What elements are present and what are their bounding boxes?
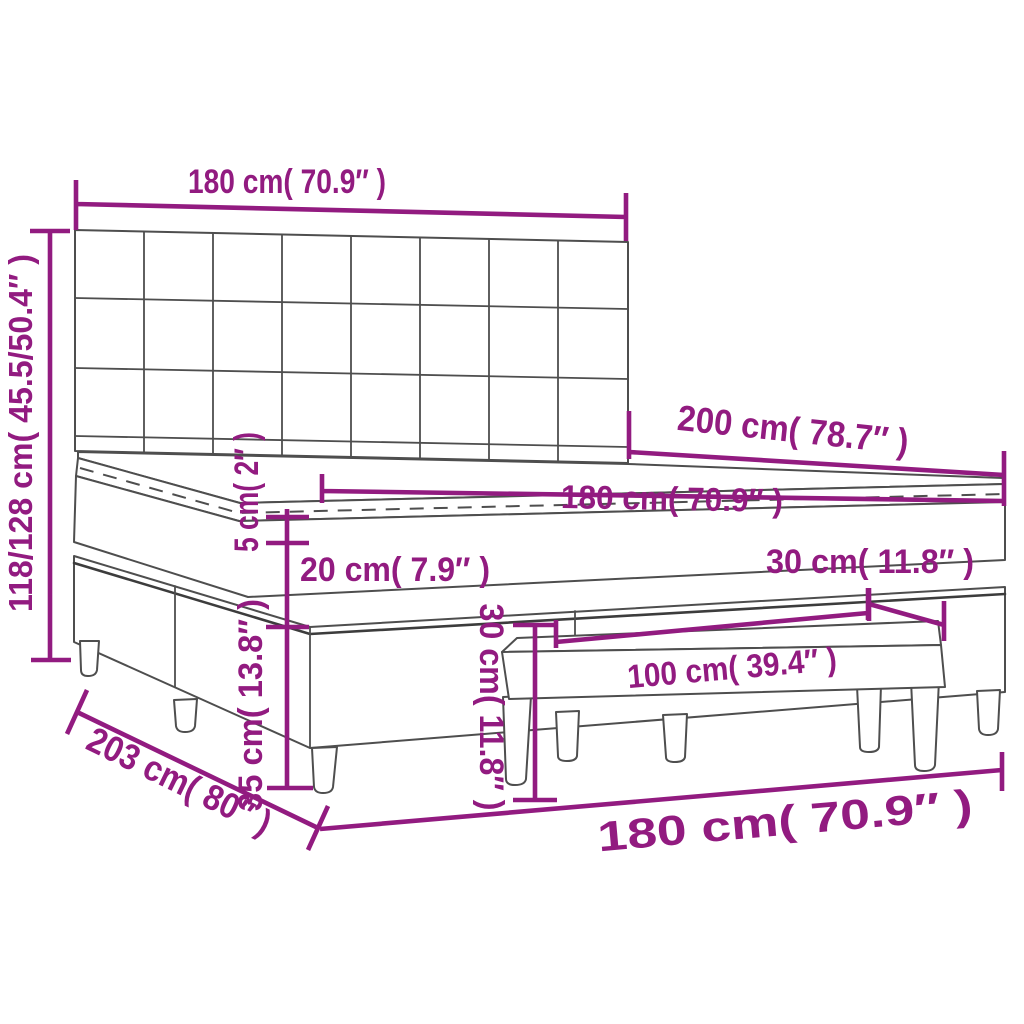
- dim-headboard-width: 180 cm( 70.9″ ): [76, 163, 626, 241]
- bed-leg: [977, 690, 1000, 735]
- dim-bench-height-label: 30 cm( 11.8″ ): [472, 604, 510, 811]
- dim-headboard-width-label: 180 cm( 70.9″ ): [188, 163, 386, 201]
- dim-headboard-height: 118/128 cm( 45.5/50.4″ ): [2, 231, 71, 660]
- bed-leg: [80, 641, 99, 676]
- bench-leg: [857, 685, 881, 752]
- dim-base-height-label: 35 cm( 13.8″ ): [232, 599, 270, 811]
- bench-leg: [663, 714, 687, 762]
- bench-leg: [556, 711, 579, 761]
- dim-bed-width-label: 180 cm( 70.9″ ): [596, 781, 975, 861]
- dim-mattress-width-label: 180 cm( 70.9″ ): [561, 478, 784, 519]
- dim-topper-thickness-label: 5 cm( 2″ ): [228, 432, 266, 552]
- dim-headboard-height-label: 118/128 cm( 45.5/50.4″ ): [2, 254, 39, 612]
- headboard: [75, 230, 628, 463]
- dim-bed-length-label: 200 cm( 78.7″ ): [676, 397, 911, 462]
- bed-leg: [174, 699, 197, 732]
- diagram-canvas: 180 cm( 70.9″ ) 118/128 cm( 45.5/50.4″ )…: [0, 0, 1024, 1024]
- bed-leg: [312, 747, 337, 793]
- dim-bed-width: 180 cm( 70.9″ ): [320, 752, 1002, 860]
- bed-dimension-diagram: 180 cm( 70.9″ ) 118/128 cm( 45.5/50.4″ )…: [0, 0, 1024, 1024]
- dim-mattress-thickness-label: 20 cm( 7.9″ ): [300, 551, 490, 589]
- bench-leg: [911, 680, 939, 771]
- dim-bench-depth-label: 30 cm( 11.8″ ): [766, 543, 974, 581]
